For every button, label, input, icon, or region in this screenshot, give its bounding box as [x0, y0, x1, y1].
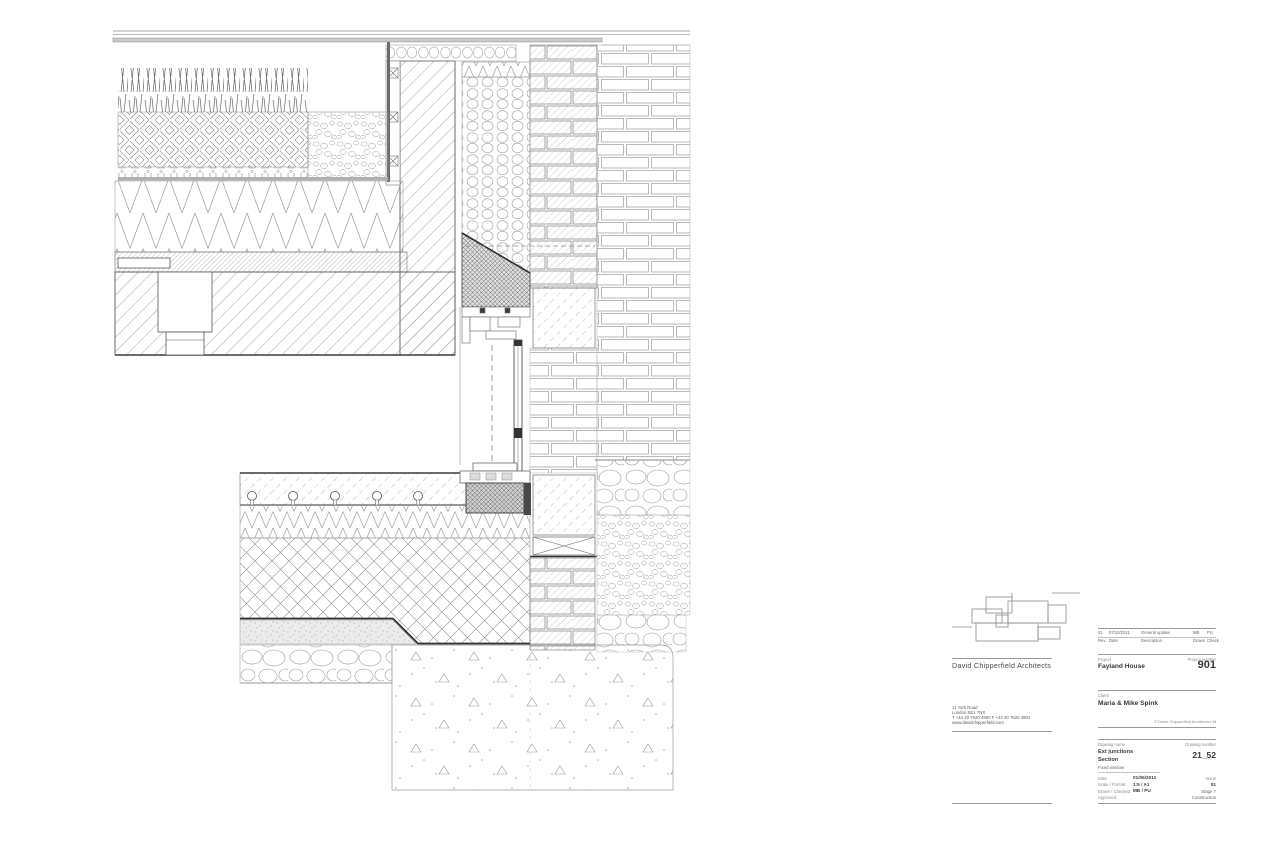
divider: [1098, 690, 1216, 691]
construction-detail-drawing: [0, 0, 1280, 853]
window-head-frame: [462, 307, 530, 343]
precast-head: [533, 288, 595, 348]
firm-address: 11 York Road London SE1 7NX T +44 20 762…: [952, 706, 1072, 726]
concrete-plinth: [533, 475, 595, 535]
gravel-fill: [597, 515, 690, 615]
cavity-closer: [462, 62, 530, 77]
address-line: www.davidchipperfield.com: [952, 721, 1072, 726]
divider: [1098, 727, 1216, 728]
revision-header-date: Date: [1109, 638, 1118, 643]
status-value: Construction: [1098, 795, 1216, 800]
membrane: [118, 177, 388, 181]
surface-pebbles: [597, 460, 690, 515]
issue-label: Issue: [1098, 776, 1216, 781]
drawing-name-line3: Fixed window: [1098, 765, 1124, 770]
vegetation-grass: [118, 68, 308, 112]
roof-parapet-detail: [113, 31, 690, 473]
divider: [1098, 739, 1216, 740]
revision-drawn: MB: [1193, 630, 1199, 635]
divider: [1098, 803, 1216, 804]
divider: [952, 658, 1052, 659]
firm-name: David Chipperfield Architects: [952, 661, 1092, 670]
project-number: 901: [1098, 659, 1216, 671]
coping-insulation: [386, 45, 516, 61]
brick-elevation-reveal: [530, 348, 597, 473]
foundation-concrete: [392, 645, 673, 790]
brick-below-ground: [530, 558, 595, 650]
revision-header-check: Check: [1207, 638, 1219, 643]
client-name: Maria & Mike Spink: [1098, 700, 1158, 707]
drawing-sheet: David Chipperfield Architects 11 York Ro…: [0, 0, 1280, 853]
ground-floor-detail: [240, 460, 690, 790]
dpc-blocking: [530, 537, 597, 557]
brick-elevation-outer: [597, 45, 690, 460]
revision-date: 07/10/2011: [1109, 630, 1130, 635]
revision-no: 01: [1098, 630, 1103, 635]
drawing-number-label: Drawing number: [1098, 742, 1216, 747]
external-ground: [595, 460, 690, 652]
drawing-number: 21_52: [1098, 750, 1216, 760]
copyright-note: © David Chipperfield Architects Ltd: [1098, 719, 1216, 724]
soil-substrate: [118, 112, 308, 167]
floor-screed: [240, 473, 470, 505]
revision-headers: Rev. Date Description Drawn Check: [1098, 638, 1216, 645]
green-roof-buildup: [115, 68, 407, 272]
issue-value: 01: [1098, 782, 1216, 787]
window-sill: [460, 463, 531, 515]
divider: [952, 803, 1052, 804]
client-label: Client: [1098, 693, 1109, 698]
revision-header-rev: Rev.: [1098, 638, 1106, 643]
divider: [1098, 654, 1216, 655]
brick-section-inner-leaf: [530, 45, 597, 288]
gravel-margin: [308, 112, 388, 180]
roof-insulation: [115, 181, 403, 252]
revision-entry: 01 07/10/2011 General update MB PU: [1098, 630, 1216, 637]
revision-check: PU: [1207, 630, 1213, 635]
location-plan-icon: [952, 583, 1082, 655]
divider: [952, 731, 1052, 732]
revision-header-drawn: Drawn: [1193, 638, 1205, 643]
revision-description: General update: [1141, 630, 1170, 635]
hardcore-pebbles: [240, 645, 392, 683]
stage-value: Stage 7: [1098, 789, 1216, 794]
drainage-pebbles: [597, 615, 686, 652]
divider: [1098, 772, 1160, 773]
revision-header-description: Description: [1141, 638, 1162, 643]
